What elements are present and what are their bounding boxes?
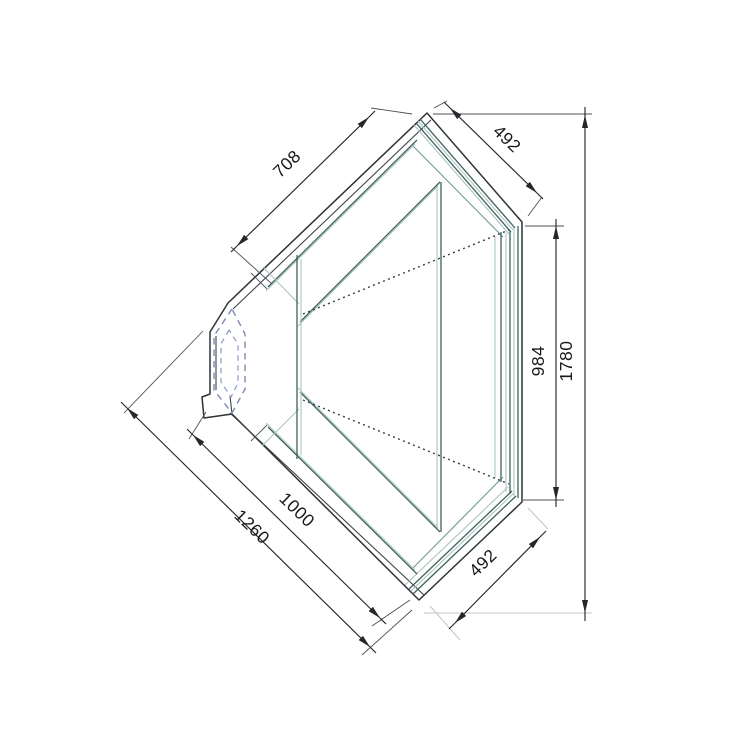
dimension-label-1260: 1260	[230, 505, 273, 548]
dimension-label-492-bottom: 492	[465, 545, 501, 581]
technical-drawing-page: 708 492 984 1780 1000	[0, 0, 750, 750]
dimension-label-708: 708	[269, 146, 305, 182]
hidden-corner-dashed-outline	[214, 309, 245, 413]
corner-display-case-drawing: 708 492 984 1780 1000	[0, 0, 750, 750]
dimension-984: 984	[528, 219, 556, 507]
dimension-label-984: 984	[528, 346, 548, 377]
dimension-label-1780: 1780	[556, 341, 576, 382]
dimension-1780: 1780	[556, 107, 585, 621]
dimension-1260: 1260	[121, 402, 376, 653]
dimension-1000: 1000	[187, 429, 386, 624]
